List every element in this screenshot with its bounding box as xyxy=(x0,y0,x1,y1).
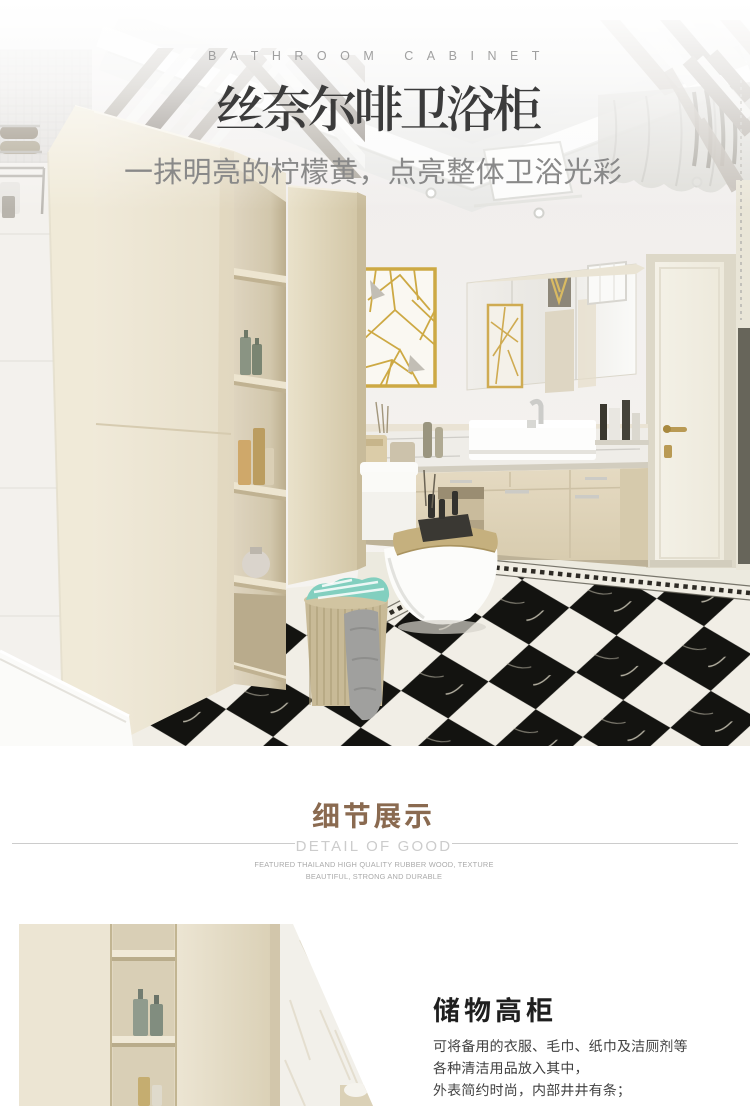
svg-text:BATHROOM CABINET: BATHROOM CABINET xyxy=(208,49,553,63)
svg-text:DETAIL OF GOOD: DETAIL OF GOOD xyxy=(296,838,453,855)
svg-text:FEATURED THAILAND HIGH QUALITY: FEATURED THAILAND HIGH QUALITY RUBBER WO… xyxy=(254,860,493,869)
svg-text:BEAUTIFUL, STRONG AND DURABLE: BEAUTIFUL, STRONG AND DURABLE xyxy=(306,872,442,881)
